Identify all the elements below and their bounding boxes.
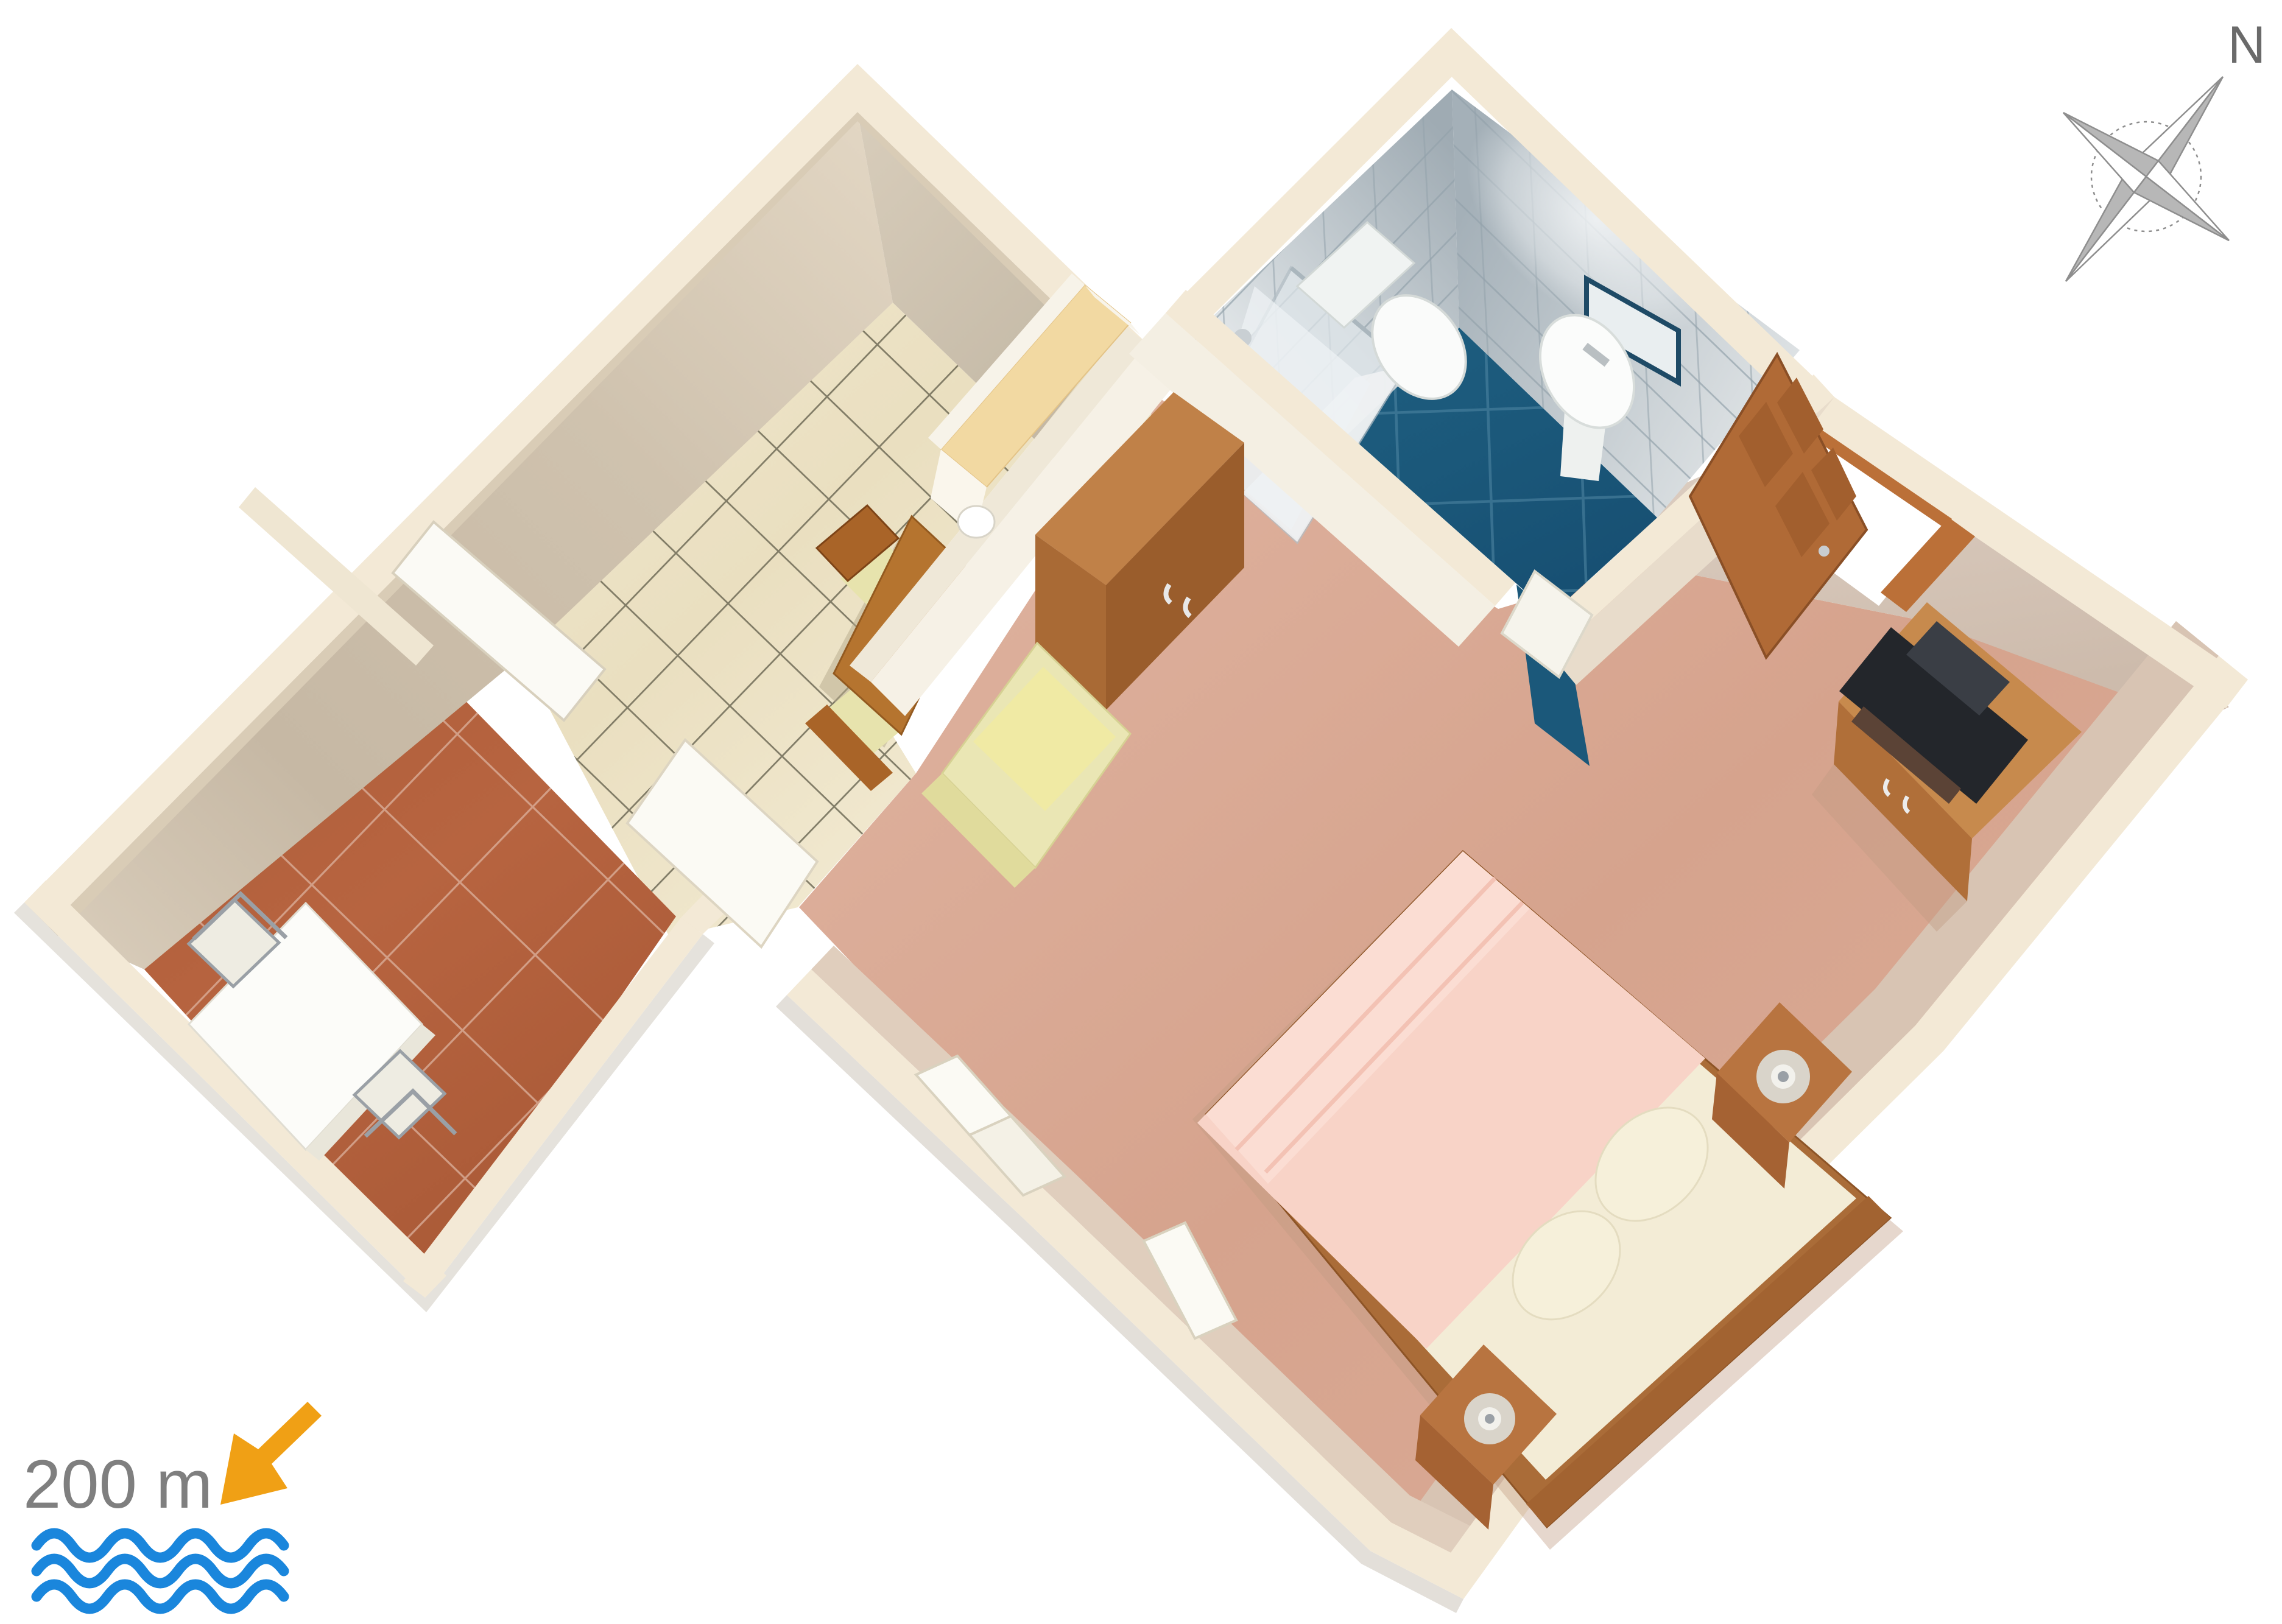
svg-text:N: N (2228, 16, 2266, 74)
svg-text:200 m: 200 m (23, 1446, 213, 1522)
